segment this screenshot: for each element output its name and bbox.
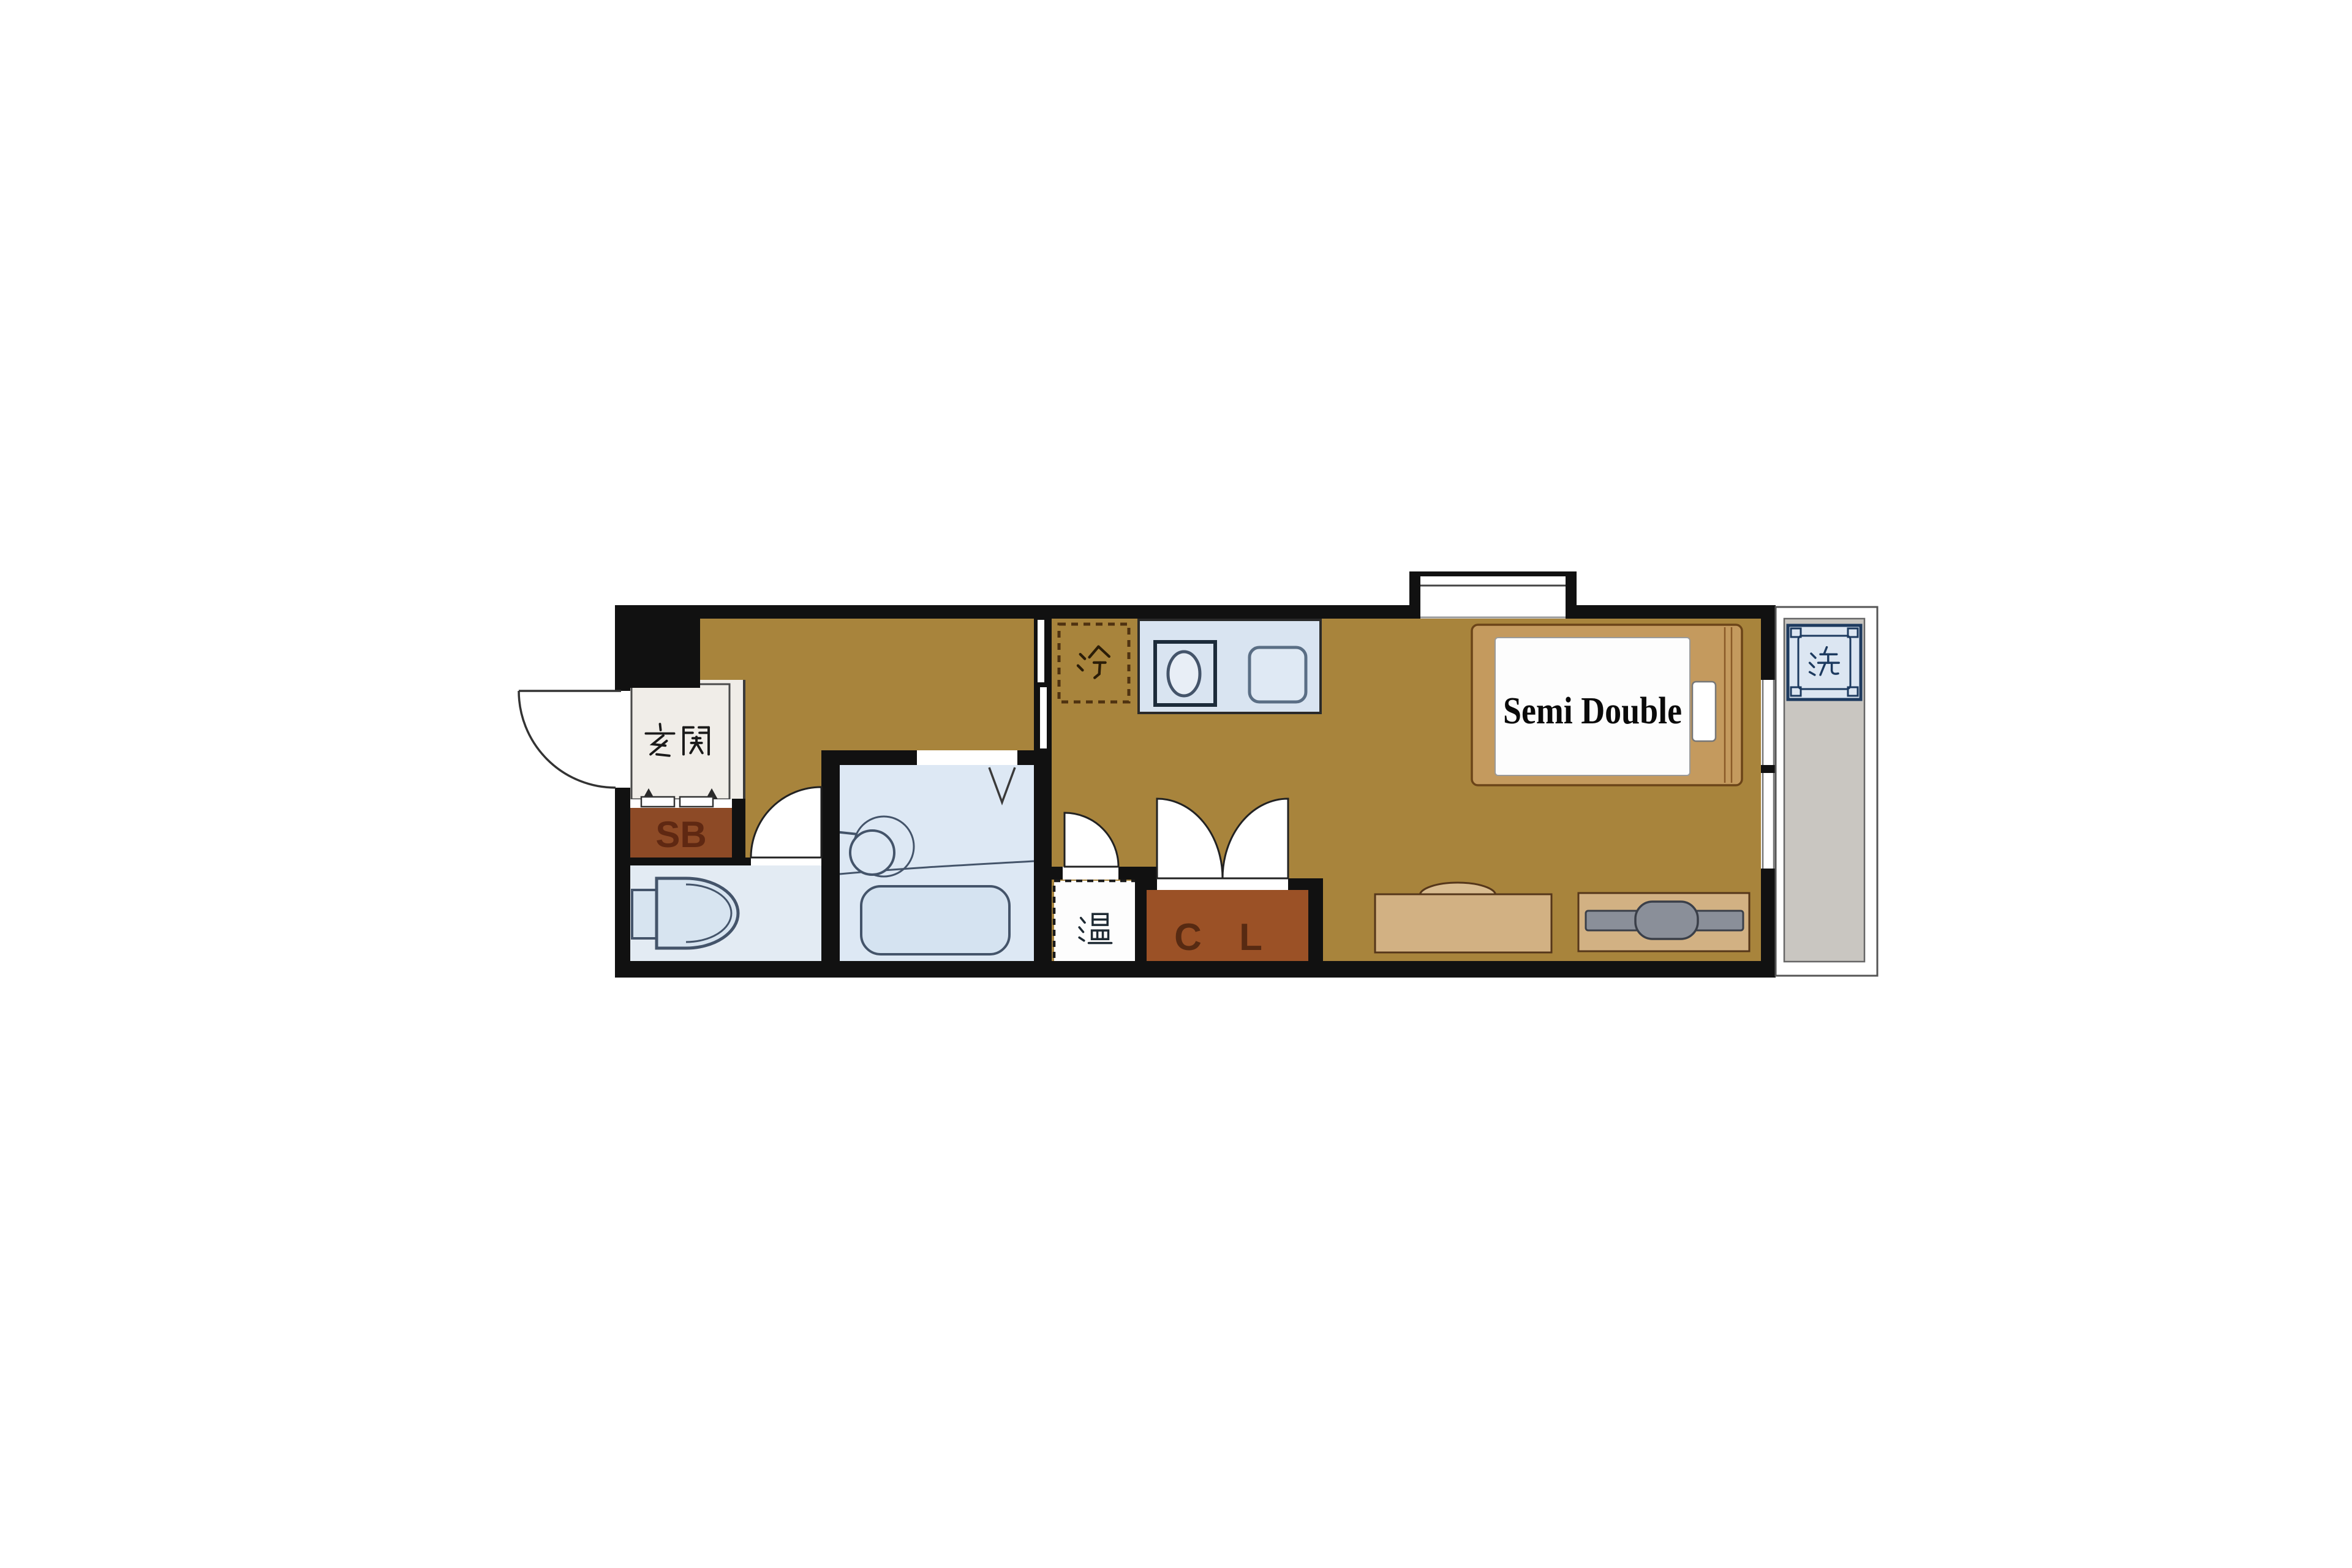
svg-text:C L: C L [1174, 916, 1276, 959]
svg-text:Semi Double: Semi Double [1503, 690, 1682, 732]
svg-text:SB: SB [655, 814, 706, 855]
